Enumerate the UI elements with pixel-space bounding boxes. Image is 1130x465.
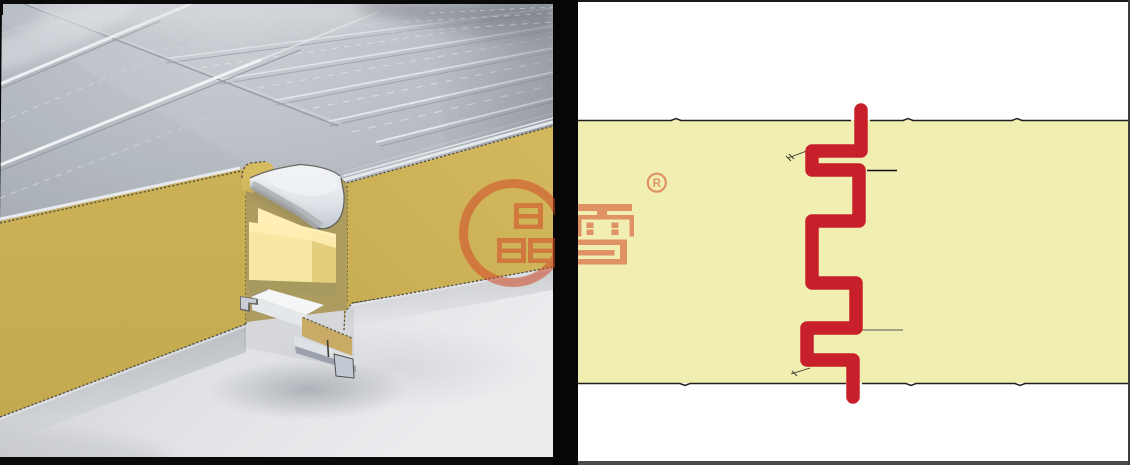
svg-text:R: R — [653, 178, 662, 190]
